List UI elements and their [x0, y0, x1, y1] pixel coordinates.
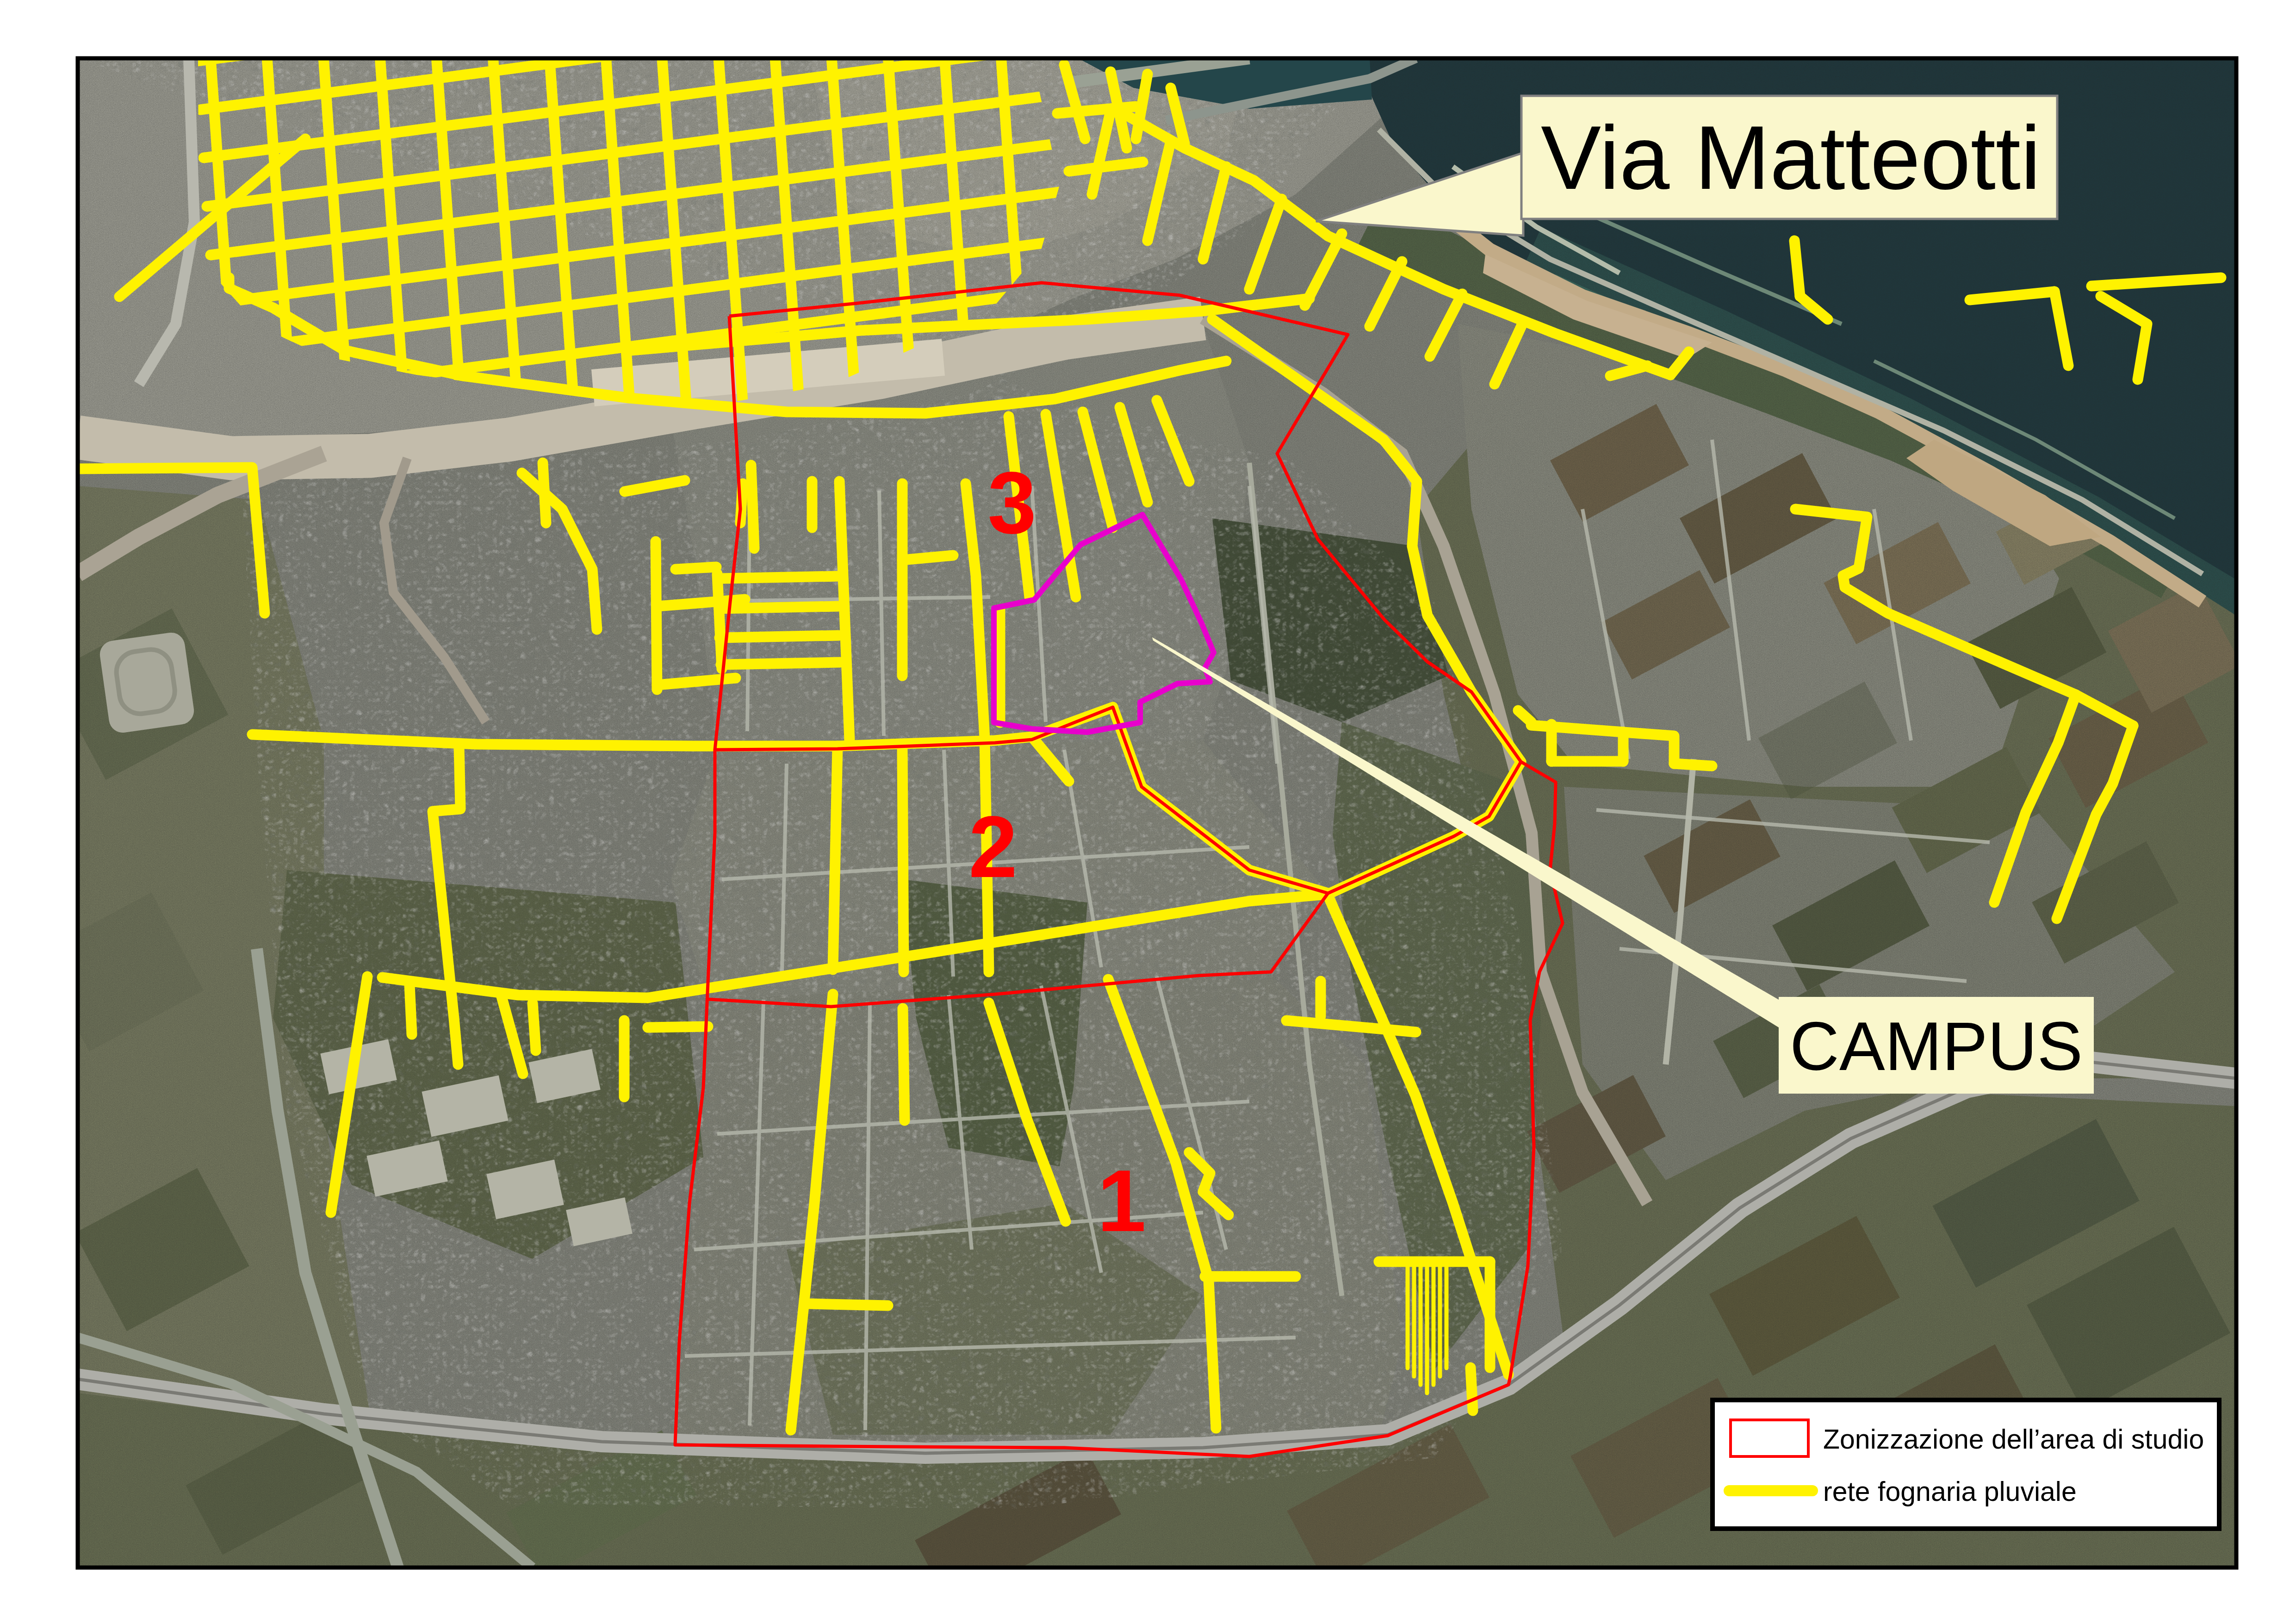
svg-text:rete fognaria pluviale: rete fognaria pluviale [1823, 1476, 2077, 1507]
svg-text:Via Matteotti: Via Matteotti [1541, 107, 2041, 208]
svg-text:1: 1 [1097, 1151, 1146, 1250]
svg-text:CAMPUS: CAMPUS [1790, 1008, 2083, 1084]
svg-text:2: 2 [968, 797, 1018, 896]
svg-text:Zonizzazione dell’area di stud: Zonizzazione dell’area di studio [1823, 1424, 2204, 1455]
svg-text:3: 3 [987, 454, 1036, 552]
